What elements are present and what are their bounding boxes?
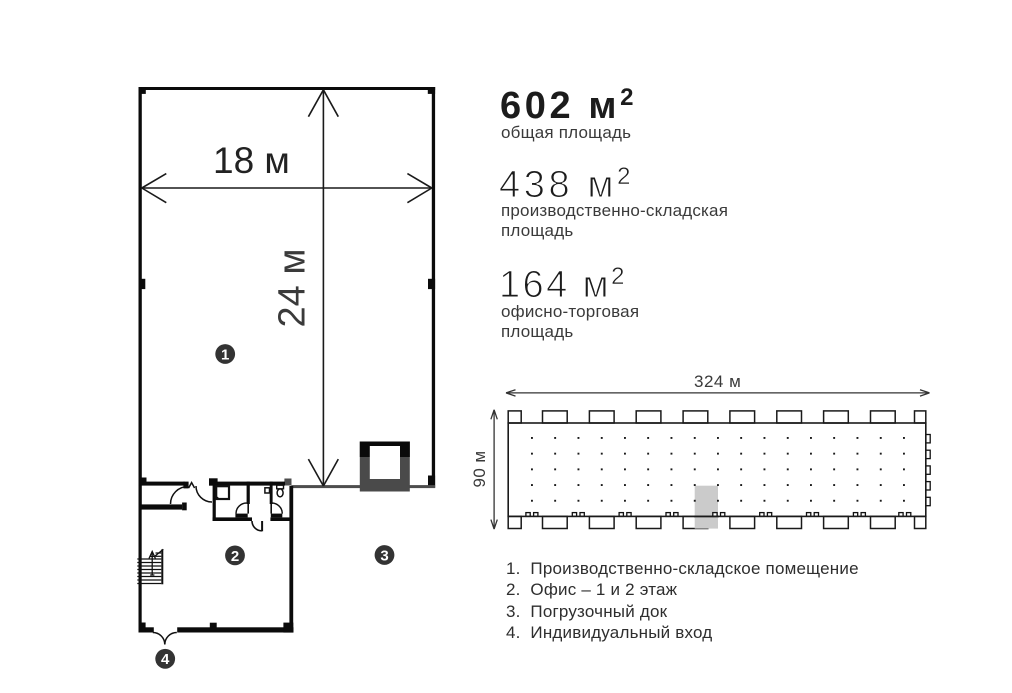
svg-text:4: 4 xyxy=(161,651,170,668)
svg-text:3: 3 xyxy=(380,547,388,564)
svg-text:1: 1 xyxy=(221,346,229,363)
svg-text:2: 2 xyxy=(231,548,239,565)
